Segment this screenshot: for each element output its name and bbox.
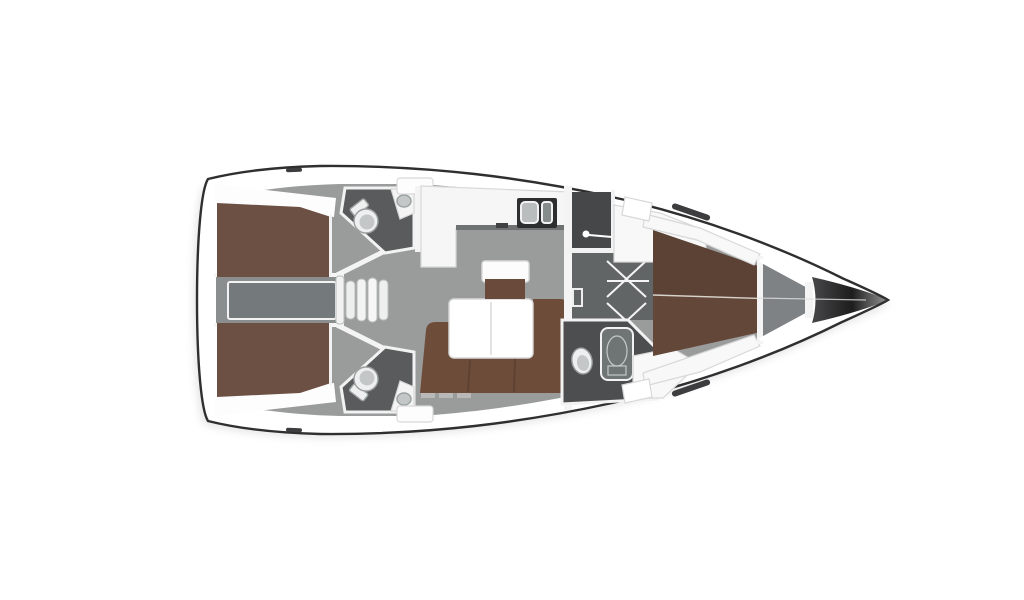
double-berth-starboard <box>217 323 331 397</box>
shower-room <box>567 190 615 253</box>
stool-top <box>482 261 529 282</box>
stool-base <box>485 279 525 299</box>
shower-wall-bottom <box>567 248 614 253</box>
sink-icon <box>397 195 411 207</box>
galley-bulkhead <box>415 186 421 252</box>
bow-bulkhead <box>805 282 813 318</box>
door-handle-icon <box>583 231 590 238</box>
under-sofa-locker-1 <box>421 393 435 398</box>
aft-cabin-port <box>217 203 332 277</box>
step-landing <box>336 276 344 324</box>
sink-basin-left <box>521 202 538 223</box>
double-berth-port <box>217 203 331 277</box>
under-sofa-locker-2 <box>439 393 453 398</box>
forward-bulkhead <box>757 256 763 344</box>
step-tread-4 <box>379 280 388 320</box>
berth-wall <box>329 215 332 277</box>
aft-cabin-starboard <box>217 323 332 397</box>
step-tread-3 <box>368 278 377 322</box>
deck-plan-canvas <box>0 0 1024 600</box>
hull-window-icon <box>286 428 302 433</box>
sink-icon <box>397 393 411 405</box>
engine-hatch <box>228 282 336 319</box>
hull-window-icon <box>286 168 302 173</box>
stove-mark <box>496 223 508 228</box>
berth-wall <box>329 323 332 385</box>
toilet-bowl <box>360 371 375 386</box>
step-tread-1 <box>346 281 355 319</box>
step-tread-2 <box>357 279 366 321</box>
engine-compartment <box>214 273 344 327</box>
toilet-bowl <box>360 215 375 230</box>
under-sofa-locker-3 <box>457 393 471 398</box>
cushion-seam-2 <box>514 358 515 392</box>
deck-hatch-starboard <box>397 406 433 422</box>
sink-basin-right <box>542 202 552 223</box>
yacht-floorplan <box>0 0 1024 600</box>
shower-floor <box>572 192 613 250</box>
